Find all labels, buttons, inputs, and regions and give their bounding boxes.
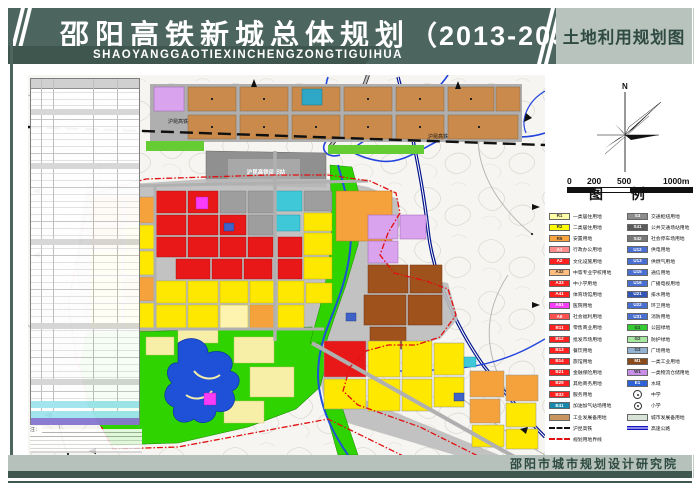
footer-accent-line	[8, 481, 692, 483]
legend-label: 金融保险用地	[573, 369, 602, 376]
legend-code: U31	[633, 315, 641, 320]
legend-swatch: S42	[627, 235, 648, 242]
legend-swatch	[627, 402, 648, 409]
legend-swatch: E1	[627, 380, 648, 387]
legend-label: 防护绿地	[651, 336, 670, 343]
hospital-block-park	[204, 393, 216, 405]
table-header-row	[31, 79, 139, 89]
legend-label: 社会福利用地	[573, 313, 602, 320]
legend-swatch: B14	[549, 358, 570, 365]
legend-swatch	[549, 427, 570, 429]
utility-block-teal-se	[464, 357, 476, 367]
legend-item: U21 排水用地	[627, 289, 697, 300]
legend-item: 中学	[627, 389, 697, 400]
legend-label: 餐饮用地	[573, 347, 592, 354]
railway-label-east: 沪昆高铁	[428, 133, 448, 140]
legend-label: 通信用地	[651, 269, 670, 276]
railway-label-west: 沪昆高铁	[168, 118, 188, 125]
legend-swatch: U12	[627, 246, 648, 253]
legend-swatch: B32	[549, 391, 570, 398]
legend-code: A51	[555, 303, 563, 308]
sheet-title: 土地利用规划图	[563, 24, 686, 48]
legend-item: U12 供电用地	[627, 244, 697, 255]
legend-swatch: M1	[627, 358, 648, 365]
legend-code: M1	[634, 359, 640, 364]
legend-label: 社会停车场用地	[651, 235, 685, 242]
legend-item: G3 广场用地	[627, 345, 697, 356]
legend-label: 行政办公用地	[573, 246, 602, 253]
footer-accent-bar	[8, 471, 692, 478]
table-section-row	[31, 379, 139, 385]
legend-code: W1	[634, 370, 641, 375]
legend-code: B29	[555, 381, 563, 386]
table-gridline	[41, 79, 42, 424]
legend-label: 公共交通场站用地	[651, 224, 689, 231]
legend-code: A1	[557, 248, 563, 253]
legend-swatch: A6	[549, 313, 570, 320]
legend-item: 工业发展备用地	[549, 412, 623, 423]
legend-item: E1 水域	[627, 378, 697, 389]
legend-label: 医院用地	[573, 302, 592, 309]
legend-label: 广播电视用地	[651, 280, 680, 287]
landuse-summary-table	[30, 78, 140, 425]
table-section-row	[31, 239, 139, 245]
legend-item: G1 公园绿地	[627, 322, 697, 333]
legend-code: U16	[633, 281, 641, 286]
legend-label: 小学	[651, 402, 661, 409]
legend-code: A6	[557, 315, 563, 320]
legend-label: 交通枢纽用地	[651, 213, 680, 220]
legend-label: 一类居住用地	[573, 213, 602, 220]
legend-code: R1	[557, 214, 563, 219]
legend-label: 水域	[651, 380, 661, 387]
legend-item: S3 交通枢纽用地	[627, 211, 697, 222]
legend-swatch: R2	[549, 224, 570, 231]
legend-code: R2	[557, 225, 563, 230]
legend-label: 批发市场用地	[573, 336, 602, 343]
sheet-title-block: 土地利用规划图	[556, 8, 692, 64]
plan-title-pinyin: SHAOYANGGAOTIEXINCHENGZONGTIGUIHUA	[93, 49, 403, 61]
legend-code: S42	[633, 237, 641, 242]
legend-item: A6 社会福利用地	[549, 311, 623, 322]
legend-item: S41 公共交通场站用地	[627, 222, 697, 233]
utility-block-blue-se	[454, 393, 464, 401]
legend-label: 二类居住用地	[573, 224, 602, 231]
legend-item: U13 供燃气用地	[627, 256, 697, 267]
legend-label: 其他商务用地	[573, 380, 602, 387]
legend-item: U31 消防用地	[627, 311, 697, 322]
legend-item: 高速公路	[627, 423, 697, 434]
legend-item: B12 批发市场用地	[549, 334, 623, 345]
north-label: N	[622, 82, 628, 91]
legend-item: B14 旅馆用地	[549, 356, 623, 367]
middle-school-icon	[633, 390, 642, 399]
legend-code: B11	[555, 326, 563, 331]
legend-code: R5	[557, 237, 563, 242]
table-note-prefix: 注：	[30, 426, 42, 433]
legend: 图 例 R1 一类居住用地 R2 二类居住用地 R5 安置用地 A1 行政办公用…	[549, 184, 697, 445]
table-gridline	[93, 79, 94, 424]
legend-item: B29 其他商务用地	[549, 378, 623, 389]
table-subtotal-row	[31, 401, 139, 408]
legend-label: 公园绿地	[651, 324, 670, 331]
legend-label: 中等专业学校用地	[573, 269, 611, 276]
legend-swatch: W1	[627, 369, 648, 376]
utility-block-blue	[346, 313, 356, 321]
legend-item: U22 环卫用地	[627, 300, 697, 311]
table-subtotal-row	[31, 411, 139, 418]
legend-swatch: U16	[627, 280, 648, 287]
legend-swatch: U22	[627, 302, 648, 309]
legend-item: A1 行政办公用地	[549, 244, 623, 255]
legend-code: E1	[635, 381, 641, 386]
institute-name: 邵阳市城市规划设计研究院	[510, 455, 678, 472]
legend-column-right: S3 交通枢纽用地 S41 公共交通场站用地 S42 社会停车场用地 U12 供…	[627, 211, 697, 445]
legend-item: A2 文化设施用地	[549, 256, 623, 267]
legend-title: 图 例	[549, 184, 697, 204]
legend-item: 规划用地界线	[549, 434, 623, 445]
legend-swatch: G1	[627, 324, 648, 331]
legend-swatch: A2	[549, 258, 570, 265]
left-frame-rule	[10, 8, 13, 478]
legend-item: W1 一类物流仓储用地	[627, 367, 697, 378]
legend-swatch	[627, 426, 648, 430]
legend-item: A41 体育场馆用地	[549, 289, 623, 300]
legend-code: S41	[633, 225, 641, 230]
legend-item: B21 金融保险用地	[549, 367, 623, 378]
legend-label: 消防用地	[651, 313, 670, 320]
legend-item: A33 中小学用地	[549, 278, 623, 289]
legend-swatch: B41	[549, 402, 570, 409]
legend-item: G2 防护绿地	[627, 334, 697, 345]
primary-school-icon	[634, 402, 642, 410]
legend-label: 规划用地界线	[573, 436, 602, 443]
legend-swatch: A41	[549, 291, 570, 298]
legend-code: A32	[555, 270, 563, 275]
legend-label: 供电用地	[651, 246, 670, 253]
legend-swatch	[549, 414, 570, 421]
legend-label: 排水用地	[651, 291, 670, 298]
compass-rose: N	[585, 80, 669, 176]
legend-label: 安置用地	[573, 235, 592, 242]
table-total-row	[31, 418, 139, 425]
legend-swatch: G2	[627, 336, 648, 343]
table-gridline	[117, 79, 118, 424]
legend-label: 零售商业用地	[573, 324, 602, 331]
legend-swatch: R1	[549, 213, 570, 220]
legend-item: A32 中等专业学校用地	[549, 267, 623, 278]
legend-label: 文化设施用地	[573, 258, 602, 265]
legend-item: R2 二类居住用地	[549, 222, 623, 233]
legend-swatch: A32	[549, 269, 570, 276]
legend-code: B14	[555, 359, 563, 364]
legend-label: 服务用地	[573, 391, 592, 398]
station-label: 沪昆高铁邵阳站	[247, 168, 286, 176]
legend-swatch: U21	[627, 291, 648, 298]
legend-code: G2	[634, 337, 640, 342]
legend-swatch: S41	[627, 224, 648, 231]
legend-label: 供燃气用地	[651, 258, 675, 265]
legend-swatch: B21	[549, 369, 570, 376]
legend-swatch: B13	[549, 347, 570, 354]
legend-label: 城市发展备用地	[651, 414, 685, 421]
legend-swatch: B12	[549, 336, 570, 343]
legend-label: 中小学用地	[573, 280, 597, 287]
legend-code: A41	[555, 292, 563, 297]
legend-swatch: B29	[549, 380, 570, 387]
legend-swatch	[627, 414, 648, 421]
legend-item: B13 餐饮用地	[549, 345, 623, 356]
legend-code: U15	[633, 270, 641, 275]
legend-swatch: U31	[627, 313, 648, 320]
legend-item: U16 广播电视用地	[627, 278, 697, 289]
legend-item: 小学	[627, 400, 697, 411]
legend-swatch: R5	[549, 235, 570, 242]
legend-code: U21	[633, 292, 641, 297]
legend-item: M1 一类工业用地	[627, 356, 697, 367]
legend-swatch: A51	[549, 302, 570, 309]
legend-label: 一类物流仓储用地	[651, 369, 689, 376]
table-section-row	[31, 109, 139, 115]
legend-label: 环卫用地	[651, 302, 670, 309]
legend-swatch: S3	[627, 213, 648, 220]
legend-code: B13	[555, 348, 563, 353]
table-section-row	[31, 163, 139, 169]
legend-swatch: U13	[627, 258, 648, 265]
legend-item: 城市发展备用地	[627, 412, 697, 423]
plaza-block-cyan	[276, 191, 302, 211]
legend-code: S3	[635, 214, 641, 219]
legend-item: U15 通信用地	[627, 267, 697, 278]
legend-item: R1 一类居住用地	[549, 211, 623, 222]
legend-code: U12	[633, 248, 641, 253]
legend-item: B41 加油加气站场用地	[549, 400, 623, 411]
land-use-plan-sheet: { "header": { "title": "邵阳高铁新城总体规划", "ti…	[0, 0, 700, 495]
logistics-block	[154, 87, 184, 111]
legend-item: 沪昆高铁	[549, 423, 623, 434]
legend-swatch: U15	[627, 269, 648, 276]
footer-bar: 邵阳市城市规划设计研究院	[8, 455, 692, 471]
legend-code: B32	[555, 393, 563, 398]
table-note-lines	[30, 429, 142, 453]
legend-item: B32 服务用地	[549, 389, 623, 400]
legend-column-left: R1 一类居住用地 R2 二类居住用地 R5 安置用地 A1 行政办公用地 A2…	[549, 211, 623, 445]
plaza-block-cyan	[276, 215, 300, 231]
legend-item: S42 社会停车场用地	[627, 233, 697, 244]
legend-item: B11 零售商业用地	[549, 322, 623, 333]
legend-code: B12	[555, 337, 563, 342]
legend-label: 加油加气站场用地	[573, 402, 611, 409]
legend-code: G1	[634, 326, 640, 331]
legend-label: 中学	[651, 391, 661, 398]
legend-swatch: A1	[549, 246, 570, 253]
legend-label: 旅馆用地	[573, 358, 592, 365]
legend-swatch: B11	[549, 324, 570, 331]
legend-swatch	[627, 391, 648, 398]
legend-label: 高速公路	[651, 425, 670, 432]
table-gridline	[53, 79, 54, 424]
legend-code: A2	[557, 259, 563, 264]
legend-item: R5 安置用地	[549, 233, 623, 244]
table-section-row	[31, 323, 139, 329]
hospital-block	[196, 197, 208, 209]
legend-label: 体育场馆用地	[573, 291, 602, 298]
legend-code: U13	[633, 259, 641, 264]
legend-swatch: A33	[549, 280, 570, 287]
utility-block-teal	[302, 89, 322, 105]
legend-code: B41	[555, 404, 563, 409]
legend-label: 一类工业用地	[651, 358, 680, 365]
legend-swatch: G3	[627, 347, 648, 354]
legend-label: 沪昆高铁	[573, 425, 592, 432]
legend-swatch	[549, 438, 570, 440]
legend-item: A51 医院用地	[549, 300, 623, 311]
legend-code: U22	[633, 303, 641, 308]
legend-label: 广场用地	[651, 347, 670, 354]
legend-code: G3	[634, 348, 640, 353]
legend-code: A33	[555, 281, 563, 286]
utility-block-blue	[224, 223, 234, 231]
legend-label: 工业发展备用地	[573, 414, 607, 421]
legend-code: B21	[555, 370, 563, 375]
title-bar: 邵阳高铁新城总体规划（2013-2030） SHAOYANGGAOTIEXINC…	[8, 8, 692, 64]
